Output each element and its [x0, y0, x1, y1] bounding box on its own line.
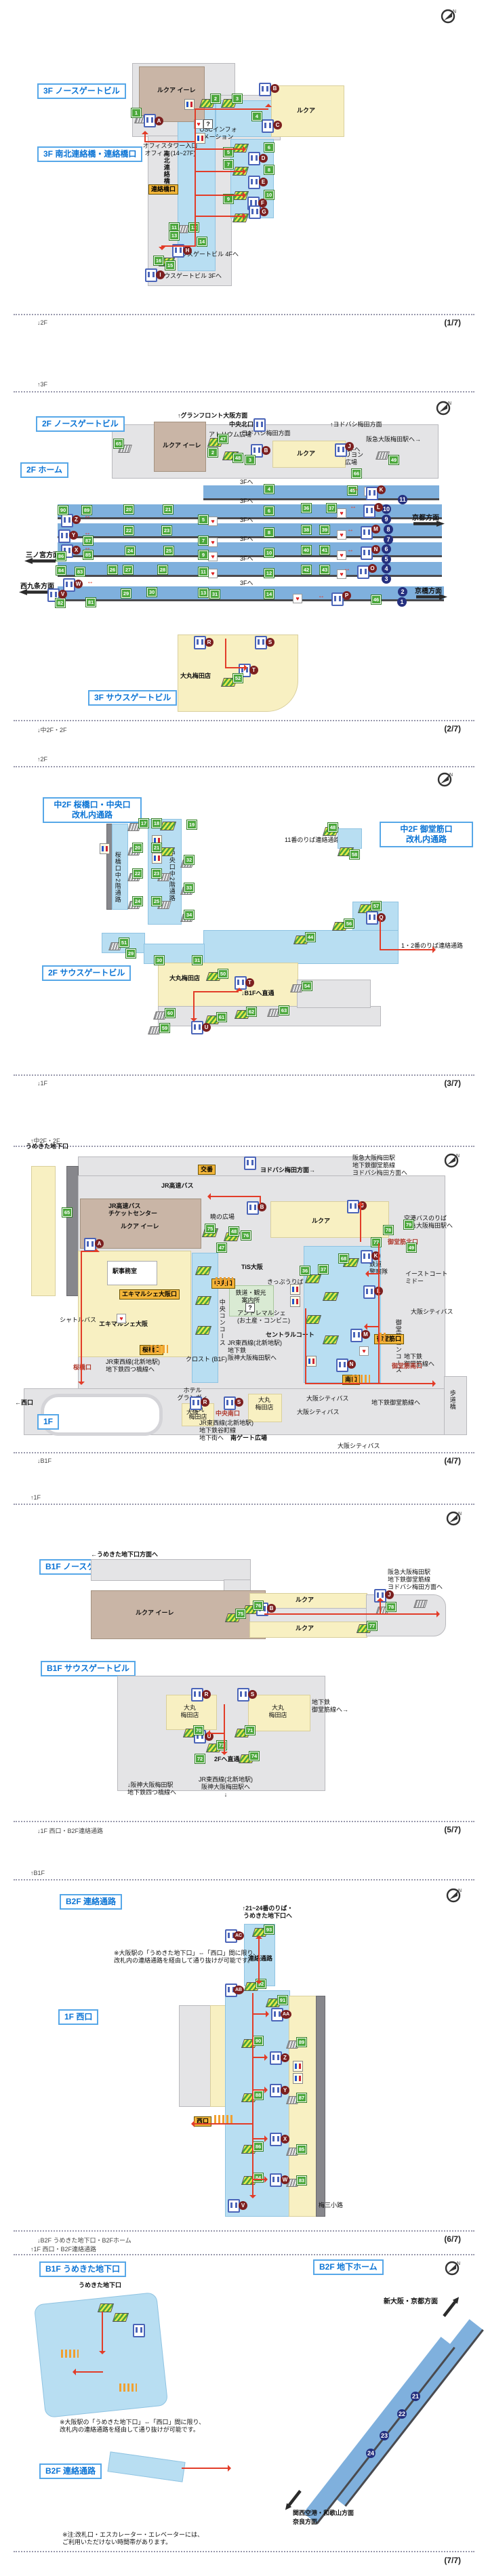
- elevator-badge: R: [202, 1690, 211, 1699]
- elevator-badge: U: [202, 1023, 211, 1032]
- floor-label-b2f-corridor: B2F 連絡通路: [60, 1894, 122, 1910]
- floor-label-2f-home: 2F ホーム: [20, 462, 68, 478]
- stair-badge: 8: [264, 165, 274, 174]
- stair-badge: 20: [124, 505, 134, 514]
- accessible-toilet-icon: [152, 853, 162, 864]
- elevator-badge: X: [72, 546, 81, 555]
- elevator-badge: P: [342, 591, 351, 600]
- route-line: [260, 1196, 261, 1204]
- route-arrow: [221, 1752, 228, 1758]
- route-arrow: [69, 2369, 76, 2375]
- floor-label-3f-bridge: 3F 南北連絡橋・連絡橋口: [37, 146, 142, 162]
- route-line: [380, 919, 381, 950]
- stair-badge: 17: [139, 819, 148, 828]
- stair-badge: 13: [169, 231, 179, 240]
- page1-footer-floor: ↓2F: [37, 319, 47, 326]
- elevator-icon: [133, 2324, 145, 2337]
- lucua-1100-label: ルクア イーレ: [157, 87, 196, 94]
- route-arrow: [99, 2351, 106, 2358]
- route-line: [144, 141, 195, 142]
- direction-kyoto: 京都方面: [412, 512, 439, 522]
- floor-label-b2f-platforms: B2F 地下ホーム: [313, 2259, 384, 2275]
- to-midosuji-line-note: 地下鉄御堂筋線へ: [371, 1399, 420, 1407]
- route-line: [252, 1993, 253, 2196]
- route-arrow: [236, 984, 243, 991]
- route-arrow: [142, 127, 148, 134]
- stair-badge: 56: [344, 919, 354, 928]
- elevator-badge: B: [270, 84, 279, 93]
- ticket-gate-icon: [61, 2350, 79, 2358]
- aed-icon: [337, 508, 346, 518]
- page-separator: [14, 314, 474, 315]
- elevator-badge: X: [281, 2135, 289, 2144]
- to-midosuji-line-note: 地下鉄 御堂筋線へ→: [312, 1699, 348, 1714]
- stair-badge: 83: [75, 567, 85, 576]
- stair-badge: 29: [126, 949, 136, 958]
- page-separator: [14, 720, 474, 721]
- stair-badge: 70: [194, 1726, 203, 1735]
- svg-text:N: N: [458, 1512, 462, 1516]
- floor-label-m2f-sakurabashi-chuo: 中2F 桜橋口・中央口 改札内通路: [43, 797, 142, 823]
- platform11-corridor-label: 11番のりば連絡通路: [285, 837, 340, 844]
- platform-number: 5: [382, 555, 391, 564]
- sakurabashi-gate-label: 桜橋口: [73, 1364, 91, 1371]
- tis-osaka-label: TiS大阪: [241, 1264, 263, 1271]
- aed-icon: [117, 1314, 126, 1323]
- stair-badge: 26: [108, 565, 117, 574]
- daimaru-label: 大丸 梅田店: [251, 1396, 278, 1411]
- transfer-arrow-icon: [84, 544, 91, 552]
- page-separator: [14, 1074, 474, 1076]
- toilet-icon: [290, 1284, 300, 1295]
- elevator-icon: [259, 83, 271, 96]
- page2-number: (2/7): [413, 724, 461, 733]
- renrakubashi-gate-badge: 連絡橋口: [148, 184, 178, 195]
- stair-badge: 75: [205, 1224, 215, 1233]
- page2-footer-floor: ↓中2F・2F: [37, 725, 67, 734]
- compass-icon: N: [445, 2259, 462, 2276]
- passage-note: ※大阪駅の「うめきた地下口」⇔「西口」間に限り、 改札内の連絡通路を経由して通り…: [60, 2419, 205, 2434]
- umesan-koji-label: 梅三小路: [319, 2202, 343, 2209]
- ticket-gate-icon: [214, 2115, 233, 2123]
- information-icon: [245, 1303, 255, 1312]
- route-line: [264, 1613, 438, 1615]
- floor-label-b1f-umekita: B1F うめきた地下口: [39, 2261, 126, 2277]
- page-separator: [14, 1821, 474, 1822]
- stair-badge: 20: [133, 843, 142, 852]
- ekimarche-gate-badge: エキマルシェ大阪口: [119, 1289, 180, 1300]
- to-3f-note: 3Fへ: [240, 498, 253, 505]
- platform-number: 9: [382, 515, 391, 524]
- page4-footer-floor: ↓B1F: [37, 1457, 52, 1464]
- svg-text:N: N: [458, 1889, 462, 1893]
- west-building-area: [31, 1166, 56, 1296]
- stair-badge: 87: [297, 2093, 306, 2102]
- lucua-label: ルクア: [297, 450, 315, 458]
- daimaru-label: 大丸梅田店: [169, 975, 200, 982]
- to-3f-note: 3Fへ: [240, 536, 253, 543]
- stair-badge: 51: [119, 938, 129, 947]
- to-hanshin-yotsubashi-note: ↓阪神大阪梅田駅 地下鉄四つ橋線へ: [127, 1782, 176, 1796]
- aed-icon: [337, 550, 346, 560]
- escalator-icon: [305, 1274, 321, 1283]
- stair-badge: 88: [253, 2091, 263, 2099]
- route-line: [360, 1204, 361, 1242]
- svg-text:N: N: [457, 2261, 460, 2266]
- daimaru-label: 大丸梅田店: [180, 672, 211, 680]
- route-line: [380, 1600, 381, 1613]
- stair-badge: 34: [184, 910, 194, 919]
- page-separator: [14, 1146, 474, 1147]
- platform-number: 1: [397, 597, 407, 607]
- elevator-badge: D: [259, 154, 268, 163]
- floor-label-2f-south-gate: 2F サウスゲートビル: [42, 965, 131, 981]
- route-line: [193, 2123, 253, 2125]
- route-arrow: [93, 1245, 100, 1252]
- route-arrow: [432, 1380, 439, 1387]
- elevator-badge: S: [235, 1398, 243, 1407]
- stair-badge: 36: [302, 504, 311, 512]
- page-separator: [14, 391, 474, 393]
- stair-badge: 91: [278, 1996, 287, 2005]
- chuo-north-gate-label: 中央北口: [229, 421, 253, 428]
- jr-bus-ticket-center-label: JR高速バス チケットセンター: [108, 1203, 157, 1217]
- route-line: [378, 1243, 380, 1383]
- elevator-badge: N: [371, 545, 380, 554]
- elevator-badge: W: [281, 2175, 289, 2184]
- stair-badge: 50: [218, 969, 228, 978]
- elevator-badge: AB: [233, 1986, 244, 1994]
- route-line: [195, 148, 243, 150]
- stair-badge: 10: [264, 548, 274, 557]
- station-map-document: N 3F ノースゲートビル 3F 南北連絡橋・連絡橋口 ルクア イーレ ルクア …: [0, 0, 488, 2576]
- north-south-bridge-label: 南北連絡橋: [163, 150, 170, 184]
- transfer-arrow-icon: [347, 546, 354, 554]
- route-line: [161, 245, 196, 247]
- elevator-badge: S: [266, 638, 274, 647]
- route-arrow: [188, 2120, 195, 2127]
- platform-number: 4: [382, 564, 391, 573]
- page-separator: [14, 1452, 474, 1453]
- chuo-concourse-label: 中央コンコース: [218, 1299, 226, 1346]
- route-arrow: [436, 1611, 443, 1617]
- route-line: [305, 1308, 306, 1383]
- stair-badge: 31: [192, 956, 202, 965]
- compass-icon: N: [444, 1151, 462, 1169]
- compass-icon: N: [437, 770, 455, 788]
- svg-text:N: N: [456, 1154, 460, 1159]
- route-arrow: [361, 1323, 367, 1330]
- elevator-badge: A: [155, 117, 163, 125]
- elevator-badge: R: [205, 638, 213, 647]
- elevator-badge: R: [201, 1398, 209, 1407]
- direction-sannomiya: 三ノ宮方面: [26, 549, 60, 559]
- page7-header-floor: ↑1F 西口・B2F連絡通路: [30, 2245, 96, 2253]
- stair-badge: 33: [184, 883, 194, 892]
- stair-badge: 44: [306, 933, 315, 942]
- tozai-hanshin-note: JR東西線(北新地駅) 地下鉄 阪神大阪梅田駅へ: [228, 1340, 282, 1361]
- tozai-yotsubashi-note: JR東西線(北新地駅) 地下鉄四つ橋線へ: [106, 1359, 160, 1373]
- stair-badge: 30: [155, 956, 164, 965]
- elevator-icon: [244, 1156, 256, 1170]
- route-line: [193, 991, 195, 1020]
- city-bus-label: 大阪シティバス: [297, 1409, 339, 1416]
- lucua-label: ルクア: [296, 1625, 314, 1632]
- information-icon: [203, 119, 213, 129]
- elevator-badge: V: [239, 2201, 247, 2210]
- route-arrow: [243, 168, 249, 175]
- stair-badge: 79: [404, 1220, 413, 1229]
- to-umekita-underground-note: ←うめきた地下口方面へ: [91, 1551, 158, 1558]
- route-arrow: [264, 2054, 271, 2061]
- stair-badge: 52: [233, 674, 243, 683]
- page-separator: [14, 2254, 474, 2255]
- tozai-tanimachi-note: JR東西線(北新地駅) 地下鉄谷町線 地下街へ: [199, 1420, 253, 1441]
- page-separator: [14, 2230, 474, 2232]
- stair-badge: 58: [350, 850, 359, 859]
- stair-badge: 23: [162, 526, 171, 535]
- route-line: [81, 1251, 82, 1384]
- stair-badge: 49: [389, 456, 399, 464]
- toilet-icon: [100, 843, 110, 854]
- west-building-shops: [210, 2005, 226, 2107]
- elevator-badge: G: [260, 207, 268, 216]
- toilet-icon: [306, 1356, 317, 1367]
- stair-badge: 86: [253, 2142, 263, 2151]
- transfer-arrow-icon: [347, 526, 354, 534]
- to-yodobashi-note: ↑ヨドバシ梅田方面: [330, 421, 382, 428]
- page7-footnote: ※注:改札口・エスカレーター・エレベーターには、 ご利用いただけない時間帯があり…: [62, 2531, 203, 2546]
- west-gate-badge: 西口: [194, 2116, 211, 2127]
- aed-icon: [208, 569, 218, 578]
- route-arrow: [256, 1981, 262, 1988]
- page5-header-floor: ↑1F: [30, 1494, 41, 1501]
- compass-icon: N: [446, 1509, 464, 1527]
- stair-badge: 21: [152, 843, 161, 852]
- route-arrow: [264, 2135, 271, 2142]
- stair-badge: 7: [199, 536, 208, 545]
- city-bus-label: 大阪シティバス: [338, 1443, 380, 1450]
- elevator-badge: Y: [281, 2086, 289, 2095]
- lucua-1100-label: ルクア イーレ: [121, 1223, 159, 1230]
- wall: [66, 1166, 79, 1296]
- aed-icon: [208, 552, 218, 561]
- platform-number: 3: [382, 574, 391, 584]
- to-3f-note: 3Fへ: [240, 517, 253, 524]
- elevator-badge: Z: [281, 2053, 289, 2062]
- ticket-gate-icon: [380, 1333, 388, 1342]
- aed-icon: [359, 1346, 369, 1356]
- route-line: [195, 108, 196, 245]
- elevator-badge: AC: [233, 1931, 244, 1940]
- stair-badge: 76: [253, 1601, 263, 1610]
- lucua-1100-label: ルクア イーレ: [136, 1609, 174, 1617]
- stair-badge: 46: [371, 595, 381, 604]
- route-arrow: [256, 1932, 262, 1939]
- stair-badge: 82: [56, 599, 65, 607]
- stair-badge: 24: [133, 897, 142, 906]
- floor-label-3f-south-gate: 3F サウスゲートビル: [88, 690, 177, 706]
- stair-badge: 90: [253, 2036, 263, 2045]
- escalator-icon: [195, 1266, 211, 1275]
- escalator-icon: [323, 1292, 339, 1301]
- stair-badge: 4: [264, 485, 274, 494]
- stair-badge: 83: [297, 2176, 306, 2185]
- city-bus-label: 大阪シティバス: [411, 1308, 453, 1316]
- stair-badge: 14: [264, 590, 274, 599]
- umekita-gate-label: うめきた地下口: [26, 1143, 68, 1150]
- page1-number: (1/7): [413, 318, 461, 327]
- page4-number: (4/7): [413, 1456, 461, 1466]
- stair-badge: 36: [300, 1266, 310, 1275]
- stair-badge: 25: [164, 546, 174, 555]
- escalator-icon: [113, 2313, 129, 2322]
- koban-badge: 交番: [198, 1165, 216, 1175]
- elevator-badge: E: [259, 178, 268, 186]
- north-sidewalk-area: [78, 1156, 378, 1177]
- stair-badge: 1: [131, 108, 141, 117]
- compass-icon: N: [446, 1886, 464, 1904]
- floor-label-1f-west-gate: 1F 西口: [58, 2009, 98, 2025]
- daimaru-label: 大丸 梅田店: [263, 1704, 293, 1719]
- transfer-arrow-icon: [318, 592, 325, 600]
- platform-number: 23: [380, 2431, 389, 2440]
- page6-header-floor: ↑B1F: [30, 1870, 45, 1876]
- toilet-icon: [293, 2061, 303, 2072]
- floor-label-3f-north-gate: 3F ノースゲートビル: [37, 83, 126, 99]
- transfer-arrow-icon: [84, 529, 91, 537]
- page2-header-floor: ↑3F: [37, 381, 47, 388]
- chuo-south-gate-label: 中央南口: [216, 1410, 240, 1417]
- elevator-icon: [253, 418, 266, 432]
- elevator-badge: Z: [72, 515, 81, 524]
- route-arrow: [265, 100, 272, 107]
- route-arrow: [432, 946, 439, 953]
- route-line: [195, 108, 268, 110]
- route-arrow: [243, 146, 249, 153]
- b2f-corridor-area: [107, 2451, 185, 2482]
- stair-badge: 90: [58, 506, 68, 515]
- to-yodobashi-note: ヨドバシ梅田方面→: [260, 1167, 315, 1174]
- elevator-badge: T: [245, 978, 254, 987]
- stair-badge: 68: [339, 1254, 348, 1263]
- escalator-icon: [160, 822, 176, 830]
- platform-number: 8: [384, 525, 393, 534]
- route-line: [305, 1383, 434, 1384]
- toilet-icon: [184, 99, 195, 110]
- transfer-arrow-icon: [350, 503, 357, 510]
- stair-badge: 3: [232, 94, 242, 103]
- stair-badge: 62: [247, 1007, 256, 1016]
- elevator-badge: C: [273, 121, 282, 129]
- stair-badge: 12: [264, 569, 274, 578]
- stair-badge: 60: [165, 1009, 175, 1018]
- page-separator: [14, 1879, 474, 1880]
- platform-number: 2: [398, 587, 407, 597]
- floor-label-1f: 1F: [37, 1414, 59, 1430]
- stair-badge: 9: [199, 550, 208, 559]
- elevator-badge: N: [347, 1360, 356, 1369]
- route-arrow: [244, 664, 251, 671]
- stair-badge: 41: [320, 546, 329, 555]
- transfer-arrow-icon: [84, 512, 91, 520]
- stair-badge: 3: [245, 456, 255, 464]
- to-hankyu-midosuji-note: 阪急大阪梅田駅 地下鉄御堂筋線 ヨドバシ梅田方面へ: [352, 1154, 407, 1176]
- route-arrow: [377, 1594, 384, 1601]
- floor-label-b2f-corridor: B2F 連絡通路: [39, 2463, 102, 2479]
- stair-badge: 8: [264, 528, 274, 537]
- ticket-gate-icon: [352, 1375, 370, 1383]
- stair-badge: 40: [302, 546, 311, 555]
- route-line: [102, 2312, 103, 2352]
- page5-number: (5/7): [413, 1825, 461, 1834]
- stair-badge: 42: [302, 565, 311, 574]
- platform-number: 11: [398, 495, 407, 504]
- route-arrow: [266, 2011, 272, 2017]
- transfer-arrow-icon: [352, 485, 359, 493]
- elevator-badge: Q: [377, 913, 386, 922]
- stair-badge: 57: [371, 902, 381, 910]
- route-line: [193, 991, 239, 992]
- stair-badge: 85: [297, 2145, 306, 2154]
- stair-badge: 65: [114, 439, 123, 448]
- platform11-corridor-area: [338, 828, 362, 849]
- escalator-icon: [98, 2303, 114, 2312]
- stair-badge: 12: [189, 223, 199, 232]
- umekita-gate-label: うめきた地下口: [79, 2282, 121, 2289]
- platform-number: 24: [366, 2449, 375, 2458]
- east-court-label: イーストコート ミドー: [405, 1270, 448, 1285]
- page6-number: (6/7): [413, 2234, 461, 2244]
- escalator-icon: [195, 1296, 211, 1305]
- stair-badge: 30: [147, 588, 157, 597]
- direct-to-b1f-note: ↓B1Fへ直通: [241, 990, 274, 997]
- to-3f-note: 3Fへ: [240, 479, 253, 486]
- page3-number: (3/7): [413, 1079, 461, 1088]
- stair-badge: 21: [163, 505, 173, 514]
- stair-badge: 25: [152, 897, 161, 906]
- stair-badge: 86: [56, 552, 66, 561]
- stair-badge: 89: [297, 2038, 306, 2047]
- to-hankyu-note: 阪急大阪梅田駅へ→: [366, 436, 421, 443]
- stair-badge: 76: [241, 1231, 251, 1240]
- elevator-badge: S: [248, 1690, 257, 1699]
- escalator-icon: [323, 1335, 339, 1344]
- stair-badge: 75: [236, 1609, 245, 1618]
- route-line: [208, 1196, 260, 1197]
- accessible-toilet-icon: [293, 2073, 303, 2084]
- ticket-gate-icon: [216, 1277, 233, 1285]
- elevator-badge: M: [361, 1330, 370, 1339]
- direction-kyobashi: 京橋方面: [415, 585, 442, 595]
- stair-badge: 48: [229, 1227, 239, 1236]
- route-arrow: [228, 2465, 235, 2472]
- stair-badge: 63: [279, 1006, 289, 1015]
- route-line: [224, 1704, 225, 1753]
- stair-badge: 29: [121, 589, 131, 598]
- stair-badge: 65: [62, 1208, 72, 1217]
- page6-footer-floor: ↓B2F うめきた地下口・B2Fホーム: [37, 2236, 131, 2245]
- aed-icon: [208, 538, 218, 547]
- elevator-badge: Y: [69, 531, 78, 540]
- stair-badge: 48: [233, 454, 243, 462]
- stair-badge: 37: [327, 504, 336, 512]
- stair-badge: 2: [211, 94, 220, 103]
- stair-badge: 31: [210, 590, 220, 599]
- elevator-badge: AA: [281, 2010, 291, 2019]
- daimaru-area: [158, 963, 298, 1007]
- escalator-icon: [195, 1326, 211, 1335]
